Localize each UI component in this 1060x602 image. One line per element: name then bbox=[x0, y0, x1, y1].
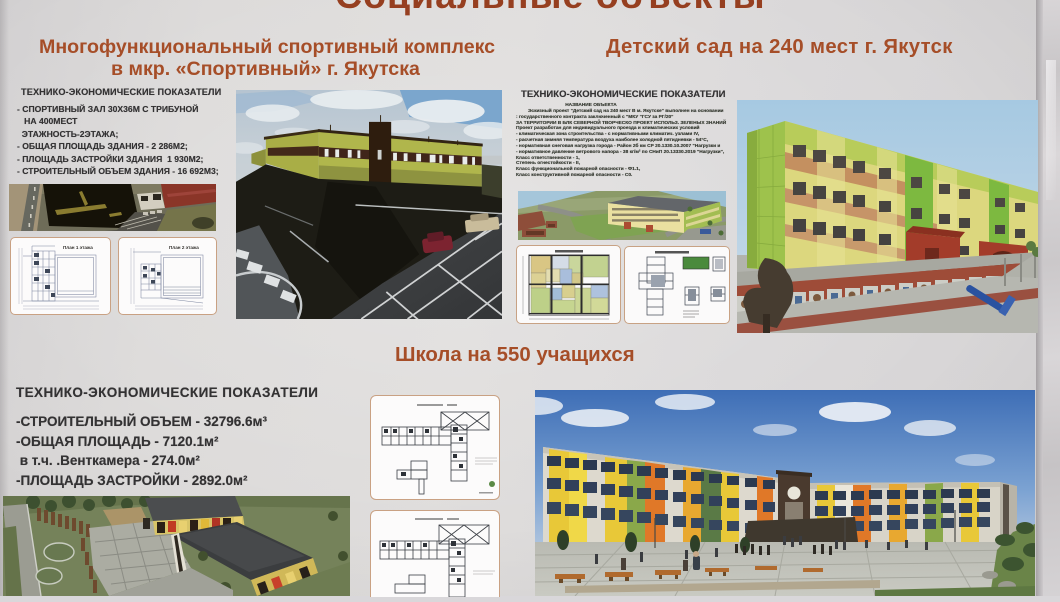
svg-text:План 1 этажа: План 1 этажа bbox=[63, 245, 93, 250]
svg-text:План 2 этажа: План 2 этажа bbox=[169, 245, 199, 250]
